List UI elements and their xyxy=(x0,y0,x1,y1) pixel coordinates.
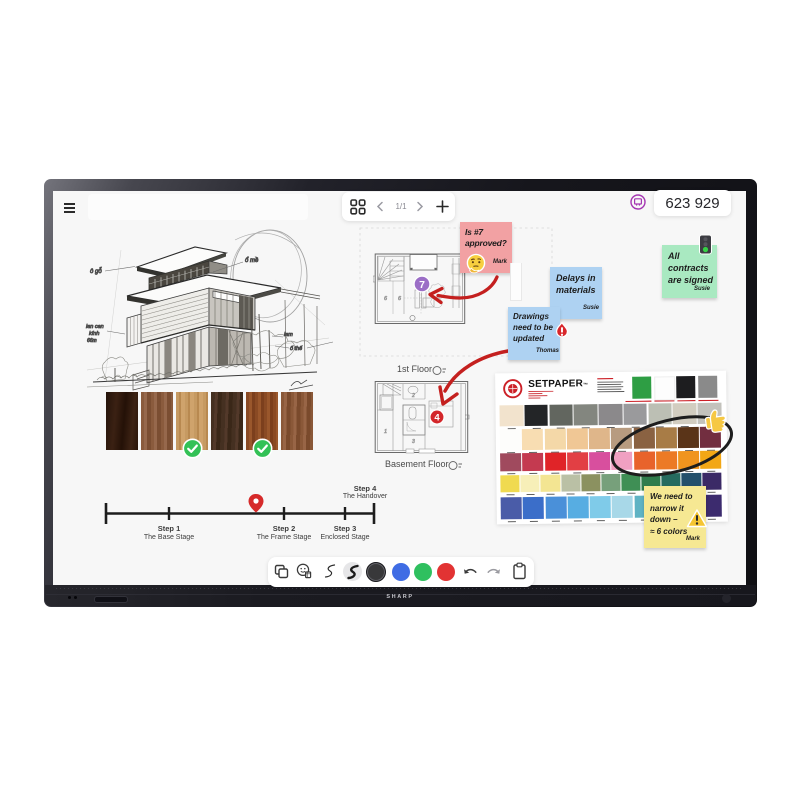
svg-text:ô gỗ: ô gỗ xyxy=(90,268,102,275)
svg-text:6: 6 xyxy=(398,296,402,302)
svg-text:ố thế: ố thế xyxy=(290,345,303,352)
svg-text:4: 4 xyxy=(434,412,440,423)
svg-text:3: 3 xyxy=(412,439,415,445)
svg-text:lan can: lan can xyxy=(86,324,104,330)
svg-text:lam: lam xyxy=(284,332,293,338)
svg-text:1: 1 xyxy=(384,429,387,435)
svg-text:2: 2 xyxy=(411,393,415,399)
svg-text:kính: kính xyxy=(89,331,99,337)
svg-text:ổ mề: ổ mề xyxy=(245,257,259,264)
svg-text:66m: 66m xyxy=(87,338,97,344)
svg-text:6: 6 xyxy=(384,296,388,302)
